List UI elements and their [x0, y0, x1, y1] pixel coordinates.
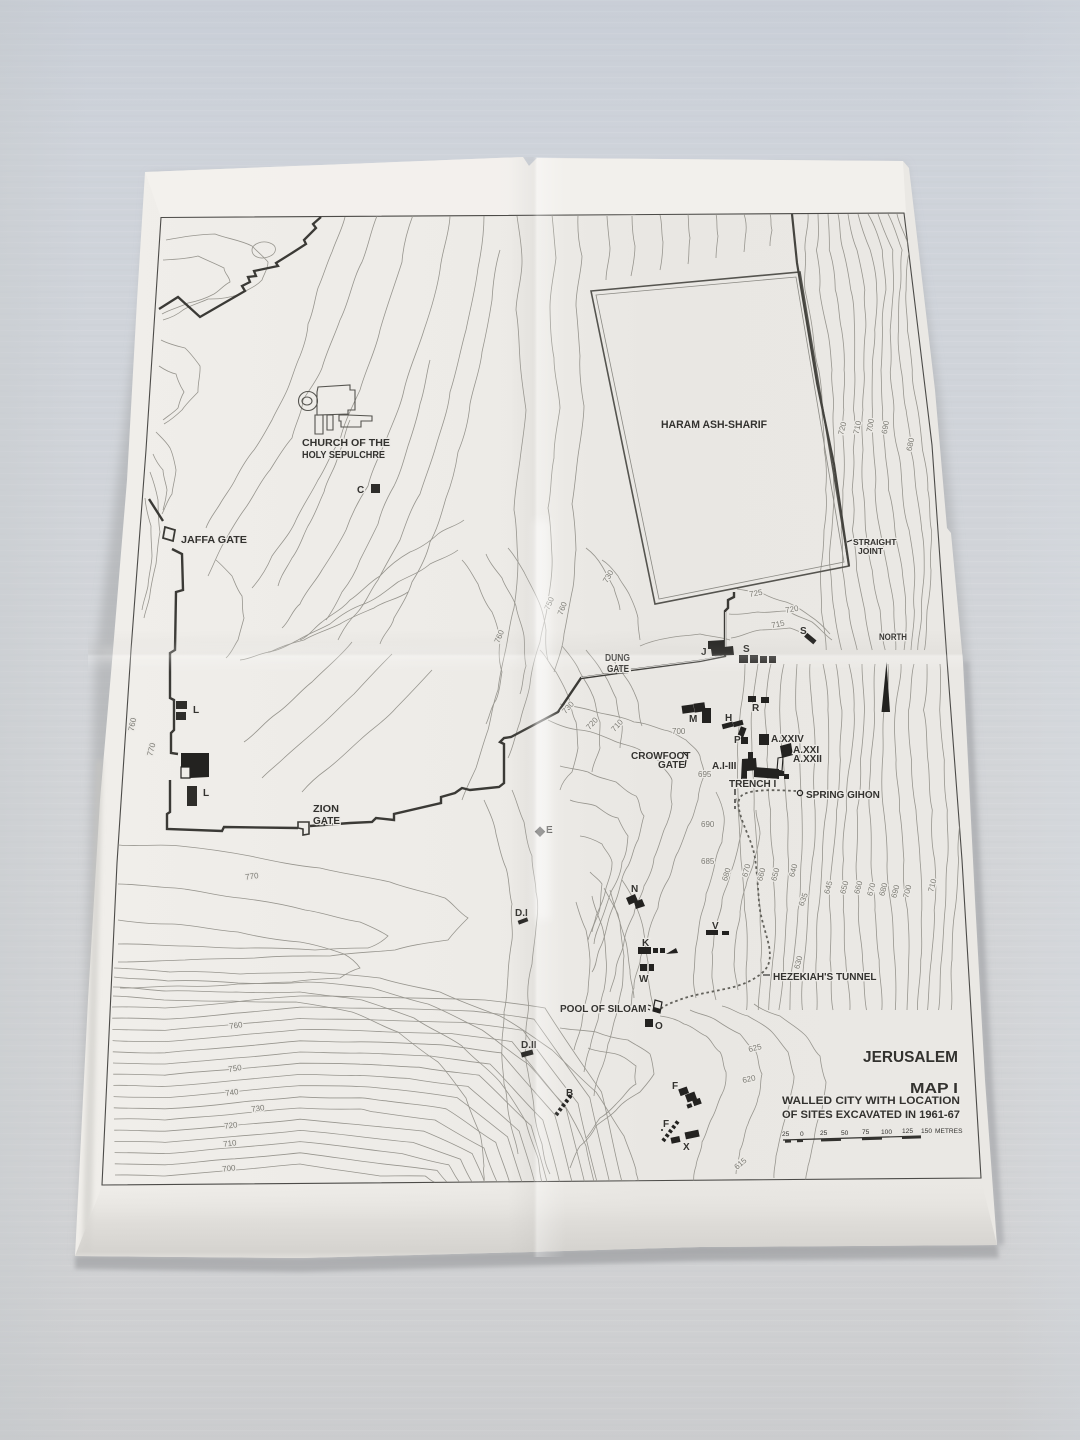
- svg-text:HEZEKIAH'S TUNNEL: HEZEKIAH'S TUNNEL: [773, 972, 877, 983]
- svg-text:OF SITES EXCAVATED IN 1961-67: OF SITES EXCAVATED IN 1961-67: [782, 1109, 960, 1121]
- svg-text:SPRING GIHON: SPRING GIHON: [806, 790, 880, 801]
- svg-text:ZION: ZION: [313, 804, 339, 815]
- svg-text:O: O: [655, 1021, 663, 1032]
- svg-text:CHURCH OF THE: CHURCH OF THE: [302, 438, 390, 449]
- svg-text:X: X: [683, 1142, 690, 1153]
- svg-text:F: F: [663, 1119, 669, 1130]
- svg-text:GATE: GATE: [313, 816, 340, 827]
- svg-text:A.I-III: A.I-III: [712, 761, 737, 772]
- svg-text:100: 100: [881, 1129, 892, 1136]
- svg-text:685: 685: [701, 857, 715, 866]
- svg-text:25: 25: [820, 1130, 828, 1137]
- svg-text:JOINT: JOINT: [858, 546, 884, 556]
- svg-text:L: L: [193, 705, 199, 716]
- svg-text:770: 770: [245, 871, 260, 882]
- svg-text:150: 150: [921, 1128, 932, 1135]
- svg-text:C: C: [357, 485, 364, 496]
- svg-text:JERUSALEM: JERUSALEM: [863, 1049, 958, 1066]
- svg-text:A.XXII: A.XXII: [793, 754, 822, 765]
- svg-text:WALLED CITY WITH LOCATION: WALLED CITY WITH LOCATION: [782, 1095, 960, 1107]
- svg-text:HOLY SEPULCHRE: HOLY SEPULCHRE: [302, 450, 385, 461]
- svg-text:POOL OF SILOAM: POOL OF SILOAM: [560, 1004, 646, 1015]
- svg-text:F: F: [672, 1081, 678, 1092]
- svg-text:25: 25: [782, 1131, 790, 1138]
- svg-text:HARAM ASH-SHARIF: HARAM ASH-SHARIF: [661, 419, 767, 431]
- svg-text:700: 700: [222, 1163, 237, 1173]
- svg-text:125: 125: [902, 1128, 913, 1135]
- svg-text:P: P: [734, 735, 741, 746]
- svg-text:GATE: GATE: [658, 760, 685, 771]
- svg-text:730: 730: [251, 1103, 266, 1114]
- svg-text:A.XXIV: A.XXIV: [771, 734, 804, 745]
- svg-text:50: 50: [841, 1130, 849, 1137]
- svg-text:700: 700: [672, 727, 686, 736]
- svg-text:L: L: [203, 788, 209, 799]
- svg-text:M: M: [689, 714, 697, 725]
- svg-text:720: 720: [224, 1120, 239, 1130]
- svg-text:695: 695: [698, 770, 712, 779]
- svg-text:690: 690: [701, 820, 715, 829]
- svg-text:TRENCH I: TRENCH I: [729, 779, 776, 790]
- svg-text:N: N: [631, 884, 638, 895]
- svg-text:0: 0: [800, 1131, 804, 1138]
- svg-text:75: 75: [862, 1129, 870, 1136]
- svg-text:760: 760: [229, 1020, 244, 1031]
- svg-text:W: W: [639, 974, 649, 985]
- svg-text:710: 710: [223, 1138, 238, 1148]
- svg-text:JAFFA GATE: JAFFA GATE: [181, 535, 247, 546]
- svg-text:METRES: METRES: [935, 1128, 963, 1135]
- svg-text:740: 740: [225, 1087, 240, 1098]
- svg-text:R: R: [752, 703, 760, 714]
